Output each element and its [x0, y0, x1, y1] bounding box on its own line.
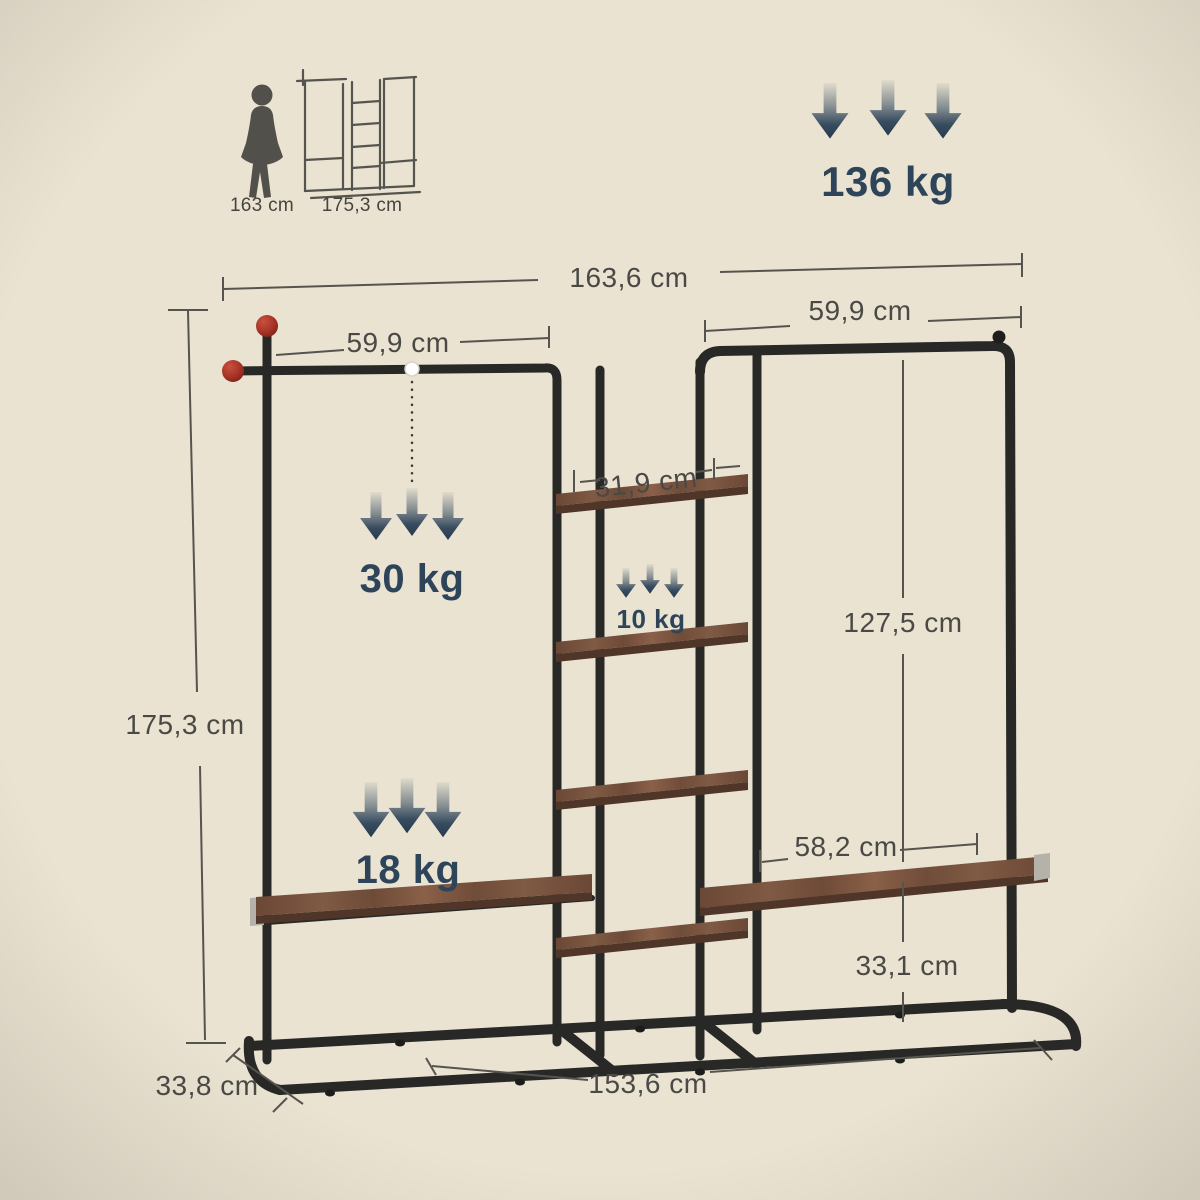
diagram-canvas: 163 cm 175,3 cm 136 k — [0, 0, 1200, 1200]
vignette-overlay — [0, 0, 1200, 1200]
product-dimension-diagram: 163 cm 175,3 cm 136 k — [0, 0, 1200, 1200]
